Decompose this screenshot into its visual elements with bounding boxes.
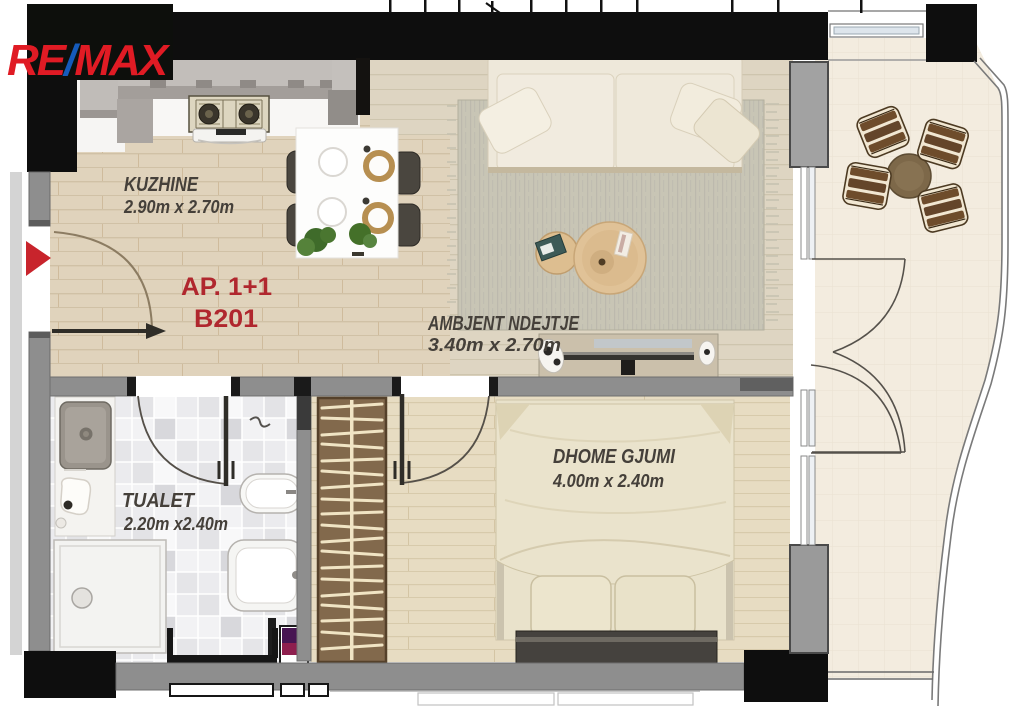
svg-text:DHOME GJUMI: DHOME GJUMI — [553, 446, 675, 468]
svg-text:AP. 1+1: AP. 1+1 — [181, 273, 272, 301]
svg-text:3.40m x 2.70m: 3.40m x 2.70m — [428, 335, 561, 355]
svg-text:KUZHINE: KUZHINE — [124, 174, 199, 196]
svg-text:4.00m x 2.40m: 4.00m x 2.40m — [552, 471, 664, 491]
svg-text:2.90m x 2.70m: 2.90m x 2.70m — [123, 197, 234, 217]
svg-text:RE/MAX: RE/MAX — [7, 36, 171, 85]
svg-text:B201: B201 — [194, 305, 258, 333]
svg-text:AMBJENT NDEJTJE: AMBJENT NDEJTJE — [427, 313, 579, 335]
svg-text:TUALET: TUALET — [122, 490, 196, 512]
svg-text:2.20m x2.40m: 2.20m x2.40m — [123, 514, 228, 534]
